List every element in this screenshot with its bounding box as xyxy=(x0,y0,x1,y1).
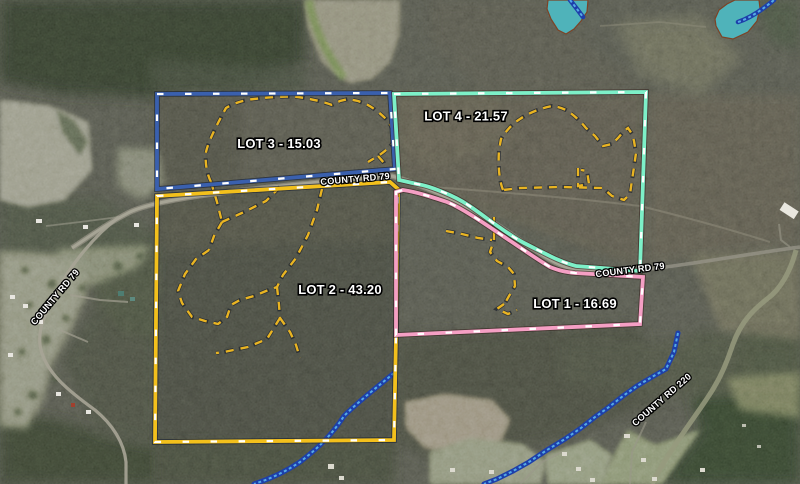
svg-text:LOT 2 - 43.20: LOT 2 - 43.20 xyxy=(298,282,382,297)
svg-text:LOT 3 - 15.03: LOT 3 - 15.03 xyxy=(237,136,321,151)
svg-text:LOT 4 - 21.57: LOT 4 - 21.57 xyxy=(424,109,508,124)
svg-text:LOT 1 - 16.69: LOT 1 - 16.69 xyxy=(533,296,617,311)
